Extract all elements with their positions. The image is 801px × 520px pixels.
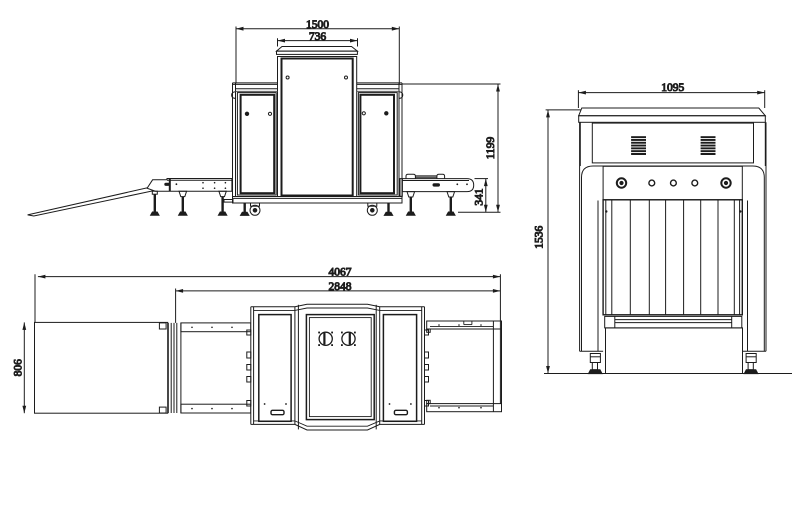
- svg-text:2848: 2848: [329, 281, 352, 293]
- svg-text:341: 341: [474, 188, 486, 206]
- svg-text:1536: 1536: [534, 225, 546, 248]
- svg-text:736: 736: [309, 31, 327, 43]
- svg-text:806: 806: [13, 359, 25, 377]
- svg-text:1095: 1095: [661, 82, 684, 94]
- svg-text:1199: 1199: [485, 136, 497, 159]
- svg-text:4067: 4067: [329, 267, 352, 279]
- svg-text:1500: 1500: [306, 19, 329, 31]
